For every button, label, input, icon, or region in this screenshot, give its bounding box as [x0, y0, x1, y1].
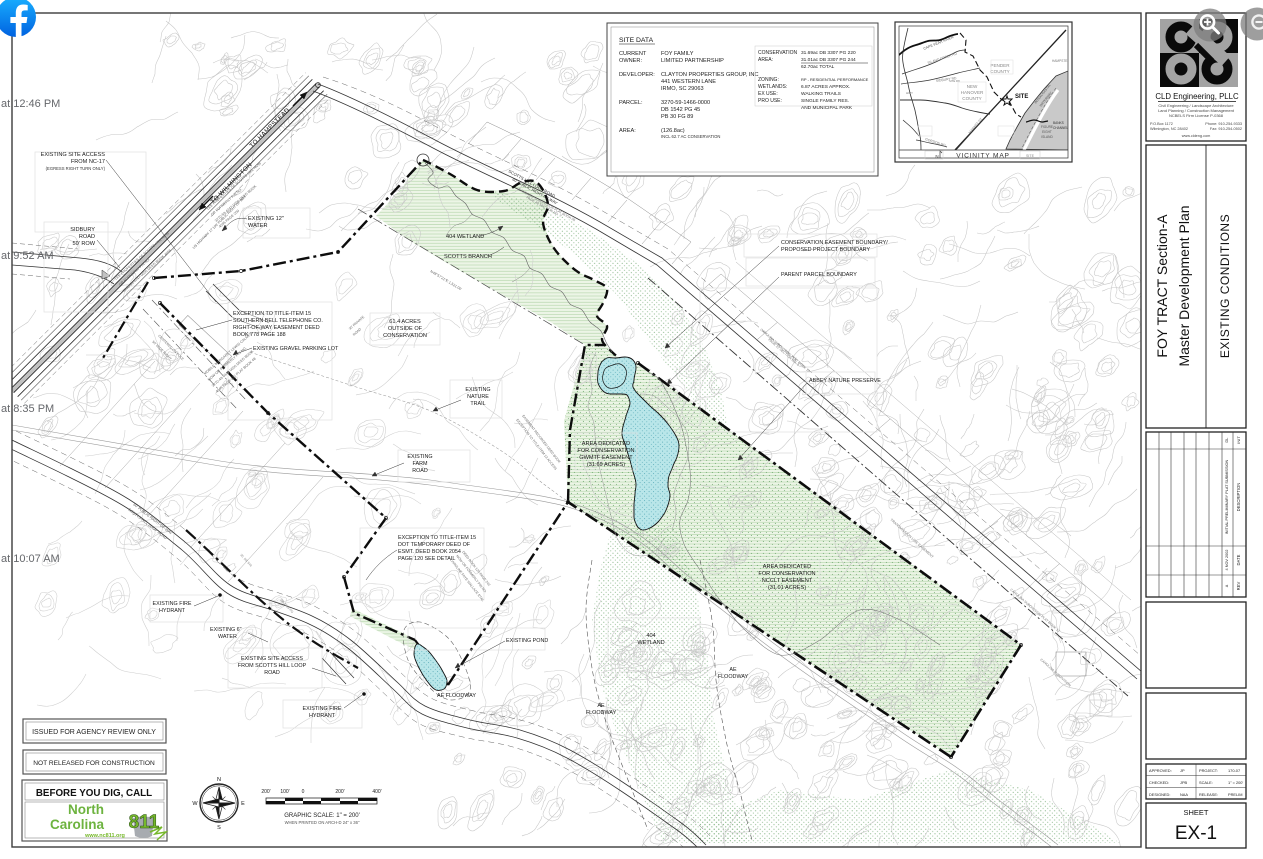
- svg-text:OUTSIDE OF: OUTSIDE OF: [388, 326, 423, 332]
- svg-text:RP - RESIDENTIAL PERFORMANCE: RP - RESIDENTIAL PERFORMANCE: [801, 77, 869, 82]
- svg-text:441 WESTERN LANE: 441 WESTERN LANE: [661, 79, 716, 85]
- svg-text:N: N: [935, 154, 938, 159]
- svg-text:DESIGNED:: DESIGNED:: [1149, 792, 1170, 797]
- svg-text:EXISTING 6": EXISTING 6": [210, 627, 242, 633]
- svg-text:COUNTY: COUNTY: [990, 69, 1009, 74]
- svg-text:100': 100': [280, 789, 289, 795]
- svg-text:EX-1: EX-1: [1175, 823, 1217, 844]
- svg-text:HYDRANT: HYDRANT: [159, 608, 186, 614]
- svg-text:200': 200': [261, 789, 270, 795]
- svg-text:APPROVED:: APPROVED:: [1149, 768, 1172, 773]
- svg-text:DATE: DATE: [1236, 554, 1241, 565]
- svg-text:(31.01 ACRES): (31.01 ACRES): [768, 585, 806, 591]
- svg-text:TRAIL: TRAIL: [470, 401, 485, 407]
- svg-text:EXISTING SITE ACCESS: EXISTING SITE ACCESS: [41, 152, 106, 158]
- svg-text:HANOVER: HANOVER: [961, 90, 984, 95]
- svg-text:FARM: FARM: [413, 461, 428, 467]
- svg-text:ROAD: ROAD: [412, 468, 428, 474]
- svg-text:PRO USE:: PRO USE:: [758, 98, 782, 104]
- svg-text:INCL 62.7 AC CONSERVATION: INCL 62.7 AC CONSERVATION: [661, 134, 720, 139]
- svg-text:4 NOV 2002: 4 NOV 2002: [1225, 550, 1229, 571]
- svg-text:EXISTING: EXISTING: [407, 454, 432, 460]
- svg-text:ZONING:: ZONING:: [758, 77, 779, 83]
- svg-text:HYDRANT: HYDRANT: [309, 713, 336, 719]
- svg-text:WATER: WATER: [248, 223, 268, 229]
- svg-text:WETLANDS:: WETLANDS:: [758, 84, 787, 90]
- svg-text:E: E: [241, 801, 245, 807]
- svg-text:INIT: INIT: [1236, 436, 1241, 444]
- svg-text:IRMO, SC 29063: IRMO, SC 29063: [661, 86, 704, 92]
- svg-text:FIGURE: FIGURE: [1041, 125, 1053, 129]
- svg-text:LIMITED PARTNERSHIP: LIMITED PARTNERSHIP: [661, 58, 724, 64]
- svg-text:SCALE:: SCALE:: [1199, 780, 1213, 785]
- svg-text:WHEN PRINTED ON ARCH-D 24" x 3: WHEN PRINTED ON ARCH-D 24" x 36": [285, 820, 360, 825]
- svg-text:VICINITY MAP: VICINITY MAP: [956, 153, 1009, 160]
- svg-text:ABBEY NATURE PRESERVE: ABBEY NATURE PRESERVE: [809, 378, 881, 384]
- svg-text:PB 30 FG 89: PB 30 FG 89: [661, 114, 693, 120]
- svg-text:CHECKED:: CHECKED:: [1149, 780, 1169, 785]
- svg-text:NATURE: NATURE: [467, 394, 489, 400]
- svg-text:200': 200': [335, 789, 344, 795]
- svg-text:REV: REV: [1236, 581, 1241, 590]
- svg-text:50' ROW: 50' ROW: [72, 241, 95, 247]
- svg-text:EXCEPTION TO TITLE-ITEM 15: EXCEPTION TO TITLE-ITEM 15: [233, 311, 311, 317]
- svg-text:GWMTF EASEMENT: GWMTF EASEMENT: [579, 455, 633, 461]
- svg-text:EXISTING FIRE: EXISTING FIRE: [303, 706, 342, 712]
- svg-text:DESCRIPTION: DESCRIPTION: [1236, 483, 1241, 512]
- svg-text:NCBELS Firm License P-0368: NCBELS Firm License P-0368: [1169, 113, 1224, 118]
- svg-text:AE FLOODWAY: AE FLOODWAY: [437, 693, 476, 699]
- svg-text:CONSERVATION EASEMENT BOUNDARY: CONSERVATION EASEMENT BOUNDARY/: [781, 240, 888, 246]
- svg-text:ESMT. DEED BOOK 2054: ESMT. DEED BOOK 2054: [398, 549, 461, 555]
- svg-text:NCCLT EASEMENT: NCCLT EASEMENT: [762, 578, 813, 584]
- svg-text:SINGLE FAMILY RES.: SINGLE FAMILY RES.: [801, 98, 849, 104]
- svg-text:NOT RELEASED FOR CONSTRUCTION: NOT RELEASED FOR CONSTRUCTION: [33, 760, 155, 767]
- svg-text:EIGHT: EIGHT: [1042, 130, 1052, 134]
- svg-text:at 8:35 PM: at 8:35 PM: [1, 403, 54, 415]
- svg-text:at 9:52 AM: at 9:52 AM: [1, 250, 54, 262]
- svg-text:404 WETLAND: 404 WETLAND: [446, 234, 484, 240]
- svg-text:EXISTING POND: EXISTING POND: [506, 638, 548, 644]
- svg-text:AND MUNICIPAL PARK: AND MUNICIPAL PARK: [801, 105, 853, 111]
- svg-text:GRAPHIC SCALE: 1" = 200': GRAPHIC SCALE: 1" = 200': [284, 813, 359, 819]
- svg-text:CONSERVATION: CONSERVATION: [383, 333, 427, 339]
- svg-text:Fax: 910-254-0502: Fax: 910-254-0502: [1210, 127, 1242, 131]
- svg-text:3270-59-1466-0000: 3270-59-1466-0000: [661, 100, 710, 106]
- svg-text:AREA:: AREA:: [758, 57, 773, 63]
- svg-text:North: North: [68, 802, 104, 817]
- svg-text:NAA: NAA: [1180, 792, 1188, 797]
- svg-text:BANKS: BANKS: [1053, 121, 1064, 125]
- svg-text:EXISTING SITE ACCESS: EXISTING SITE ACCESS: [241, 656, 303, 662]
- svg-text:at 10:07 AM: at 10:07 AM: [1, 553, 60, 565]
- svg-text:(31.69 ACRES): (31.69 ACRES): [587, 462, 625, 468]
- svg-text:AREA DEDICATED: AREA DEDICATED: [582, 441, 630, 447]
- svg-text:SOUTHERN BELL TELEPHONE CO.: SOUTHERN BELL TELEPHONE CO.: [233, 318, 323, 324]
- svg-text:P.O.Box 1172: P.O.Box 1172: [1150, 122, 1173, 126]
- svg-text:WETLAND: WETLAND: [637, 640, 664, 646]
- svg-text:SITE DATA: SITE DATA: [619, 37, 654, 44]
- svg-text:W: W: [192, 801, 198, 807]
- svg-text:BEFORE YOU DIG, CALL: BEFORE YOU DIG, CALL: [36, 788, 152, 799]
- svg-text:ROAD: ROAD: [264, 670, 280, 676]
- svg-text:PENDER: PENDER: [990, 63, 1010, 68]
- svg-text:EXISTING FIRE: EXISTING FIRE: [153, 601, 192, 607]
- svg-text:WATER: WATER: [218, 634, 237, 640]
- svg-text:S: S: [217, 825, 221, 831]
- svg-text:JP: JP: [1180, 768, 1185, 773]
- svg-text:AE: AE: [729, 667, 737, 673]
- svg-text:SIDBURY: SIDBURY: [70, 227, 95, 233]
- svg-text:61.4 ACRES: 61.4 ACRES: [389, 319, 421, 325]
- svg-text:CLD Engineering, PLLC: CLD Engineering, PLLC: [1155, 92, 1239, 101]
- svg-text:ROAD: ROAD: [79, 234, 95, 240]
- svg-text:FOY FAMILY: FOY FAMILY: [661, 51, 694, 57]
- svg-text:OWNER:: OWNER:: [619, 58, 642, 64]
- svg-text:SHEET: SHEET: [1183, 808, 1208, 817]
- svg-text:PROJECT:: PROJECT:: [1199, 768, 1218, 773]
- svg-text:EXISTING 12": EXISTING 12": [248, 216, 284, 222]
- svg-text:170-07: 170-07: [1228, 768, 1240, 773]
- svg-text:INITIAL PRELIMINARY PLAT SUBMI: INITIAL PRELIMINARY PLAT SUBMISSION: [1225, 460, 1229, 535]
- svg-text:RIGHT-OF-WAY EASEMENT DEED: RIGHT-OF-WAY EASEMENT DEED: [233, 325, 320, 331]
- svg-text:AREA:: AREA:: [619, 128, 636, 134]
- svg-text:400': 400': [372, 789, 381, 795]
- svg-text:at 12:46 PM: at 12:46 PM: [1, 98, 60, 110]
- svg-text:EXISTING CONDITIONS: EXISTING CONDITIONS: [1218, 214, 1232, 358]
- svg-text:www.cldeng.com: www.cldeng.com: [1182, 134, 1211, 138]
- svg-text:CHANNEL: CHANNEL: [1053, 126, 1068, 130]
- svg-text:N: N: [217, 777, 221, 783]
- svg-text:SITE: SITE: [1015, 94, 1028, 100]
- svg-text:COUNTY: COUNTY: [962, 96, 981, 101]
- svg-text:www.nc811.org: www.nc811.org: [84, 833, 125, 839]
- svg-text:31.69ac DB 3307 PG 220: 31.69ac DB 3307 PG 220: [801, 50, 856, 56]
- svg-text:SITE: SITE: [1026, 154, 1035, 158]
- svg-text:DEVELOPER:: DEVELOPER:: [619, 72, 655, 78]
- svg-text:0: 0: [302, 789, 305, 795]
- svg-text:1" = 200': 1" = 200': [1228, 780, 1243, 785]
- svg-text:FLOODWAY: FLOODWAY: [718, 674, 749, 680]
- svg-text:PARCEL:: PARCEL:: [619, 100, 643, 106]
- svg-text:Phone: 910-254-9333: Phone: 910-254-9333: [1205, 122, 1242, 126]
- svg-text:DL: DL: [1225, 438, 1229, 443]
- svg-text:(EGRESS RIGHT TURN ONLY): (EGRESS RIGHT TURN ONLY): [46, 166, 106, 171]
- svg-text:NEW: NEW: [967, 84, 978, 89]
- svg-text:CLAYTON PROPERTIES GROUP, INC: CLAYTON PROPERTIES GROUP, INC: [661, 72, 759, 78]
- svg-text:Carolina: Carolina: [50, 817, 105, 832]
- svg-text:CONSERVATION: CONSERVATION: [758, 50, 798, 56]
- svg-text:PRELIM: PRELIM: [1228, 792, 1243, 797]
- svg-text:31.01ac DB 3307 PG 244: 31.01ac DB 3307 PG 244: [801, 57, 856, 63]
- svg-text:Wilmington, NC 28402: Wilmington, NC 28402: [1150, 127, 1188, 131]
- svg-text:BOOK 778 PAGE 188: BOOK 778 PAGE 188: [233, 332, 286, 338]
- svg-text:Master Development Plan: Master Development Plan: [1176, 205, 1192, 366]
- svg-text:HWY: HWY: [906, 91, 913, 95]
- svg-text:62.70ac TOTAL: 62.70ac TOTAL: [801, 64, 835, 70]
- svg-text:FLOODWAY: FLOODWAY: [586, 710, 617, 716]
- svg-text:EXCEPTION TO TITLE-ITEM 15: EXCEPTION TO TITLE-ITEM 15: [398, 535, 476, 541]
- svg-text:DB 1542 PG 45: DB 1542 PG 45: [661, 107, 700, 113]
- svg-text:6.87 ACRES APPROX.: 6.87 ACRES APPROX.: [801, 84, 850, 90]
- svg-text:PARENT PARCEL BOUNDARY: PARENT PARCEL BOUNDARY: [781, 272, 857, 278]
- svg-text:AE: AE: [597, 703, 605, 709]
- svg-text:RELEASE:: RELEASE:: [1199, 792, 1218, 797]
- svg-text:FROM SCOTTS HILL LOOP: FROM SCOTTS HILL LOOP: [238, 663, 307, 669]
- svg-text:ISLAND: ISLAND: [1041, 135, 1053, 139]
- svg-text:EX USE:: EX USE:: [758, 91, 778, 97]
- svg-text:AREA DEDICATED: AREA DEDICATED: [763, 564, 811, 570]
- svg-text:SITE RD: SITE RD: [949, 79, 960, 83]
- svg-text:EXISTING: EXISTING: [465, 387, 490, 393]
- svg-text:A: A: [1225, 584, 1229, 587]
- svg-text:JPB: JPB: [1180, 780, 1188, 785]
- svg-text:ISSUED FOR AGENCY REVIEW ONLY: ISSUED FOR AGENCY REVIEW ONLY: [32, 729, 156, 736]
- svg-text:FROM NC-17: FROM NC-17: [71, 159, 105, 165]
- svg-text:CURRENT: CURRENT: [619, 51, 647, 57]
- svg-text:PAGE 120 SEE DETAIL: PAGE 120 SEE DETAIL: [398, 556, 455, 562]
- svg-text:DOT TEMPORARY DEED OF: DOT TEMPORARY DEED OF: [398, 542, 471, 548]
- svg-text:WALKING TRAILS: WALKING TRAILS: [801, 91, 841, 97]
- svg-text:FOR CONSERVATION: FOR CONSERVATION: [758, 571, 815, 577]
- svg-text:FOY TRACT Section-A: FOY TRACT Section-A: [1154, 214, 1170, 358]
- svg-text:EXISTING GRAVEL PARKING LOT: EXISTING GRAVEL PARKING LOT: [253, 346, 339, 352]
- svg-text:PROPOSED PROJECT BOUNDARY: PROPOSED PROJECT BOUNDARY: [781, 247, 870, 253]
- svg-text:404: 404: [646, 633, 655, 639]
- svg-text:FOR CONSERVATION: FOR CONSERVATION: [577, 448, 634, 454]
- svg-text:SCOTTS BRANCH: SCOTTS BRANCH: [444, 254, 492, 260]
- svg-text:811: 811: [129, 812, 160, 833]
